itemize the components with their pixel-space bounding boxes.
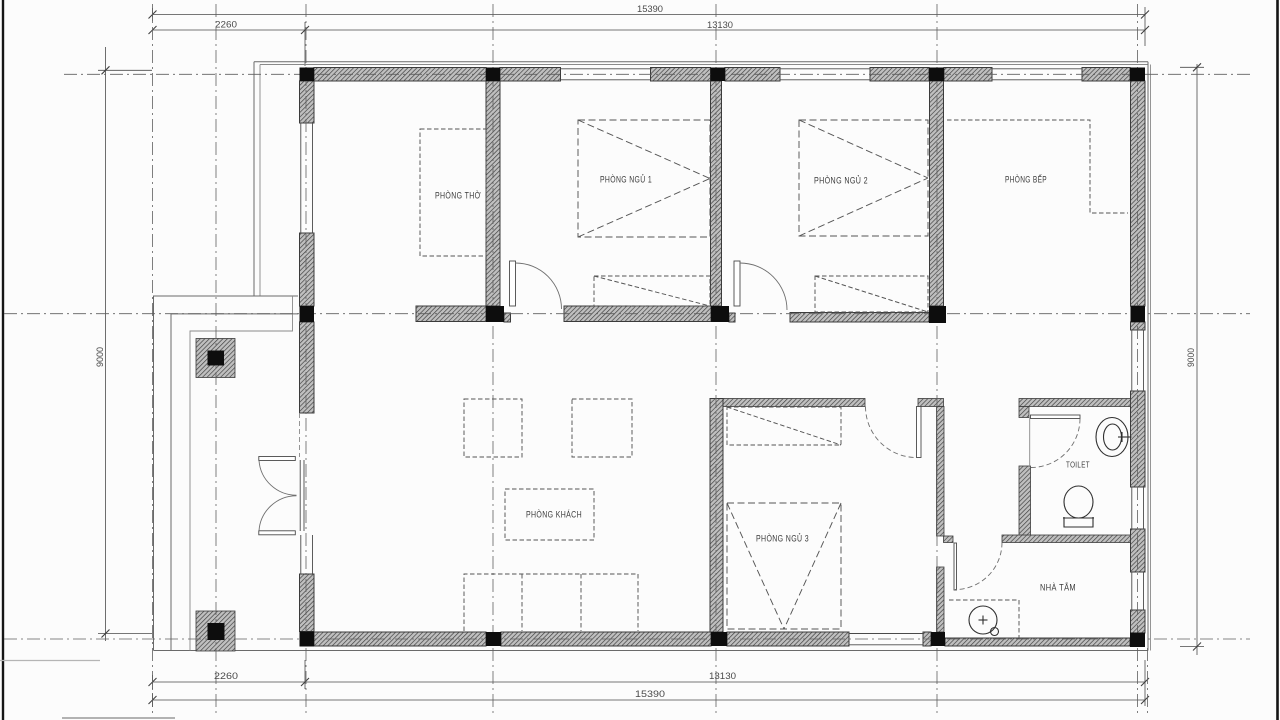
svg-text:PHÒNG NGỦ 1: PHÒNG NGỦ 1 [600,174,652,186]
svg-text:15390: 15390 [637,4,663,14]
svg-text:PHÒNG THỜ: PHÒNG THỜ [435,191,481,202]
svg-text:PHÒNG KHÁCH: PHÒNG KHÁCH [526,510,582,521]
svg-text:2260: 2260 [214,671,238,681]
svg-text:9000: 9000 [1186,348,1196,367]
svg-text:9000: 9000 [95,347,105,367]
svg-text:PHÒNG BẾP: PHÒNG BẾP [1005,175,1047,186]
svg-text:PHÒNG NGỦ 3: PHÒNG NGỦ 3 [756,533,809,545]
svg-text:15390: 15390 [635,689,665,699]
svg-text:2260: 2260 [215,20,237,30]
svg-text:13130: 13130 [709,671,736,681]
svg-text:PHÒNG NGỦ 2: PHÒNG NGỦ 2 [814,175,868,187]
svg-text:NHÀ TẮM: NHÀ TẮM [1040,583,1076,594]
svg-text:13130: 13130 [707,20,733,30]
svg-text:TOILET: TOILET [1066,460,1090,470]
